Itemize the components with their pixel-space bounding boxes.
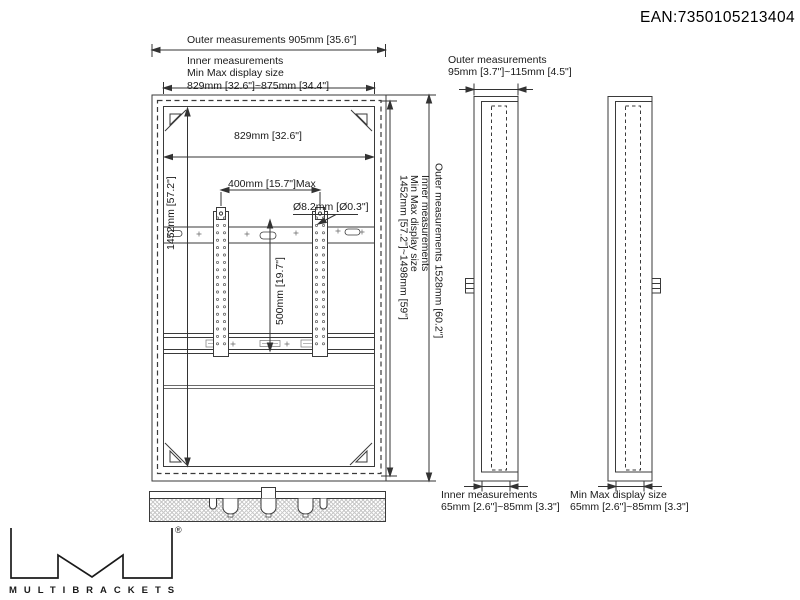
bottom-strip-drawing	[150, 488, 386, 522]
inner-height-label-block: Inner measurements Min Max display size …	[398, 175, 430, 320]
side-outer-line1: Outer measurements	[448, 54, 572, 66]
side-outer-line2: 95mm [3.7"]~115mm [4.5"]	[448, 66, 572, 78]
inner-height-line1: Inner measurements	[419, 175, 430, 320]
registered-mark: ®	[175, 525, 182, 535]
side-minmax-line1: Min Max display size	[570, 489, 689, 501]
side-view-1-drawing	[459, 84, 533, 492]
side-inner-dim-label-block: Inner measurements 65mm [2.6"]~85mm [3.3…	[441, 489, 560, 514]
frame-height-label: 1452mm [57.2"]	[165, 176, 177, 250]
side-view-2-drawing	[598, 97, 662, 492]
side-minmax-dim-label-block: Min Max display size 65mm [2.6"]~85mm [3…	[570, 489, 689, 514]
dimension-lines	[152, 44, 436, 481]
technical-drawing-page: EAN:7350105213404 Outer measurements 905…	[0, 0, 800, 600]
side-minmax-line2: 65mm [2.6"]~85mm [3.3"]	[570, 501, 689, 513]
inner-width-dim-label-block: Inner measurements Min Max display size …	[187, 55, 329, 92]
inner-width-829-label: 829mm [32.6"]	[234, 130, 302, 142]
side-outer-dim-label-block: Outer measurements 95mm [3.7"]~115mm [4.…	[448, 54, 572, 79]
vesa-height-label: 500mm [19.7"]	[274, 257, 286, 325]
inner-width-line1: Inner measurements	[187, 55, 329, 67]
side-inner-line2: 65mm [2.6"]~85mm [3.3"]	[441, 501, 560, 513]
side-inner-line1: Inner measurements	[441, 489, 560, 501]
inner-height-line2: Min Max display size	[409, 175, 420, 320]
inner-width-line3: 829mm [32.6"]~875mm [34.4"]	[187, 80, 329, 92]
ean-text: EAN:7350105213404	[640, 9, 795, 27]
hole-diameter-label: Ø8.2mm [Ø0.3"]	[293, 201, 369, 213]
brand-logo-m	[11, 528, 172, 578]
outer-height-label: Outer measurements 1528mm [60.2"]	[433, 163, 444, 338]
vesa-width-label: 400mm [15.7"]Max	[228, 178, 316, 190]
inner-height-line3: 1452mm [57.2"]~1498mm [59"]	[398, 175, 409, 320]
brand-wordmark: MULTIBRACKETS	[9, 585, 181, 596]
outer-width-dim-label: Outer measurements 905mm [35.6"]	[187, 34, 356, 46]
inner-width-line2: Min Max display size	[187, 67, 329, 79]
